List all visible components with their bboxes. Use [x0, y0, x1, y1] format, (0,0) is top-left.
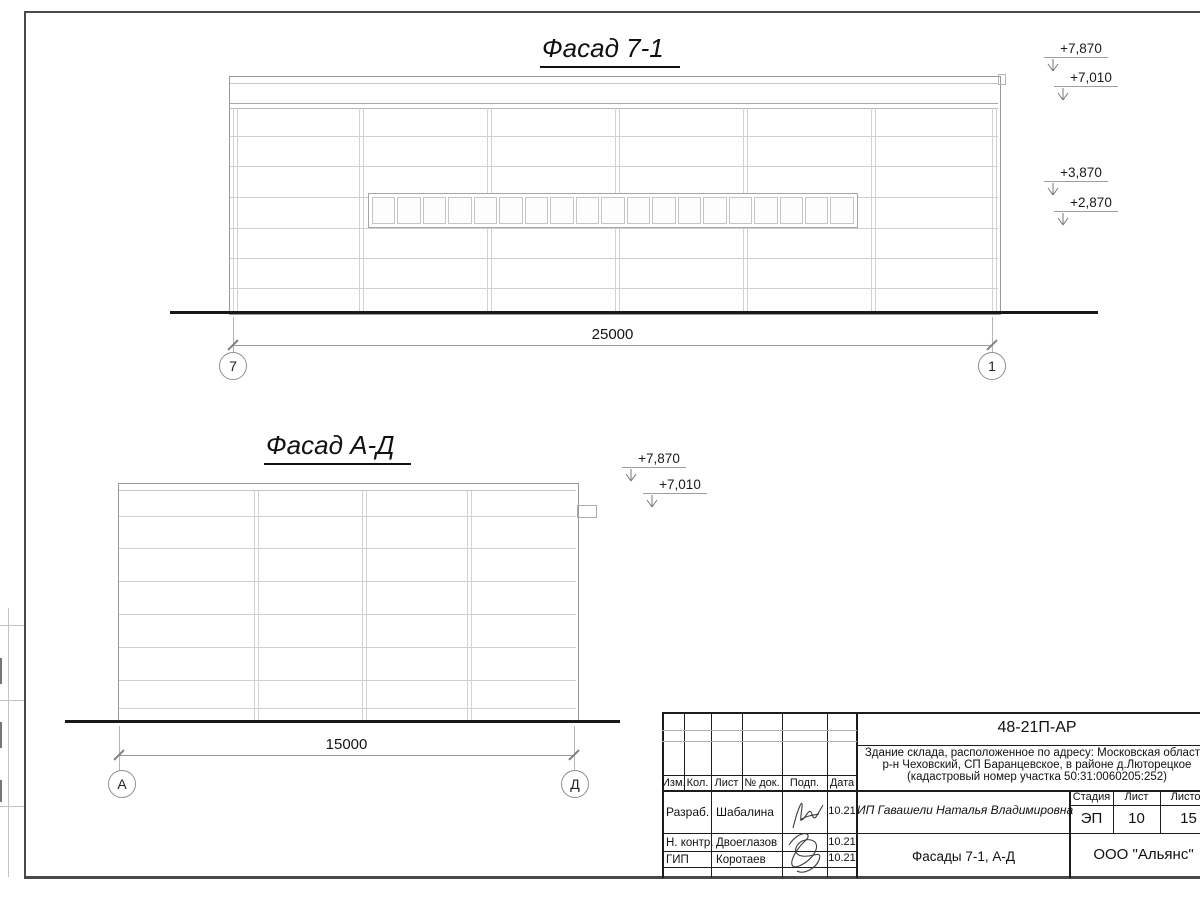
role-label: Н. контр. — [666, 837, 713, 849]
margin-column-divider — [0, 806, 24, 807]
role-label: ГИП — [666, 854, 689, 866]
elevation-mark: +2,870 — [1054, 195, 1118, 212]
column-line — [871, 108, 876, 312]
siding-line — [230, 288, 998, 289]
frame-bottom-border — [24, 876, 1200, 879]
parapet-line — [230, 108, 998, 109]
window-pane — [703, 197, 726, 224]
title-block-line — [662, 730, 857, 731]
axis-marker-d: Д — [561, 770, 589, 798]
elevation-mark: +7,010 — [643, 477, 707, 494]
elevation-mark: +7,870 — [1044, 41, 1108, 58]
title-block-line — [662, 775, 857, 776]
facade2-building-outline — [118, 483, 579, 723]
facade1-ground-line — [170, 311, 1098, 314]
window-pane — [372, 197, 395, 224]
elevation-value: +7,010 — [643, 477, 707, 492]
title-block-line — [1070, 805, 1200, 806]
siding-line — [119, 647, 576, 648]
facade2-ground-line — [65, 720, 620, 723]
elevation-arrow-icon — [1055, 87, 1071, 103]
facade1-title: Фасад 7-1 — [540, 33, 680, 68]
col-header-doc: № док. — [742, 777, 782, 789]
sheets-label: Листов — [1160, 791, 1200, 803]
stage-value: ЭП — [1070, 810, 1113, 827]
window-strip — [368, 193, 858, 228]
window-pane — [627, 197, 650, 224]
elevation-arrow-icon — [623, 468, 639, 484]
drawing-sheet: { "drawing": { "facade1": { "title": "Фа… — [0, 0, 1200, 900]
window-pane — [805, 197, 828, 224]
window-pane — [448, 197, 471, 224]
siding-line — [230, 166, 998, 167]
facade2-dimension-line — [119, 755, 574, 756]
gutter-outlet — [577, 505, 597, 518]
column-line — [254, 491, 259, 720]
parapet-line — [230, 103, 998, 104]
sheets-value: 15 — [1160, 810, 1200, 827]
col-header-podp: Подп. — [782, 777, 827, 789]
client-name: ИП Гавашели Наталья Владимировна — [857, 803, 1070, 817]
title-block-line — [662, 833, 1200, 834]
margin-text-fragment — [0, 722, 2, 748]
stage-label: Стадия — [1070, 791, 1113, 803]
extension-line — [574, 726, 575, 771]
facade1-dimension-line — [233, 345, 992, 346]
margin-text-fragment — [0, 780, 2, 802]
window-pane — [550, 197, 573, 224]
column-line — [362, 491, 367, 720]
siding-line — [230, 258, 998, 259]
column-line — [992, 108, 997, 312]
parapet-end-cap — [998, 74, 1006, 85]
role-name: Шабалина — [716, 805, 774, 819]
doc-code: 48-21П-АР — [857, 719, 1200, 737]
frame-top-border — [25, 11, 1200, 13]
elevation-mark: +7,870 — [622, 451, 686, 468]
window-pane — [601, 197, 624, 224]
window-pane — [525, 197, 548, 224]
frame-left-border — [24, 11, 26, 877]
siding-line — [119, 581, 576, 582]
siding-line — [119, 708, 576, 709]
siding-line — [119, 516, 576, 517]
sheet-label: Лист — [1113, 791, 1160, 803]
parapet-line — [119, 490, 576, 491]
window-pane — [780, 197, 803, 224]
window-pane — [576, 197, 599, 224]
window-pane — [499, 197, 522, 224]
column-line — [233, 108, 238, 312]
project-description-line1: Здание склада, расположенное по адресу: … — [857, 747, 1200, 759]
column-line — [359, 108, 364, 312]
role-name: Двоеглазов — [716, 837, 777, 849]
siding-line — [230, 136, 998, 137]
elevation-mark: +7,010 — [1054, 70, 1118, 87]
window-pane — [423, 197, 446, 224]
title-block-line — [711, 712, 712, 878]
elevation-arrow-icon — [1055, 212, 1071, 228]
col-header-izm: Изм. — [662, 777, 684, 789]
elevation-value: +7,010 — [1054, 70, 1118, 85]
column-line — [467, 491, 472, 720]
parapet-line — [230, 83, 998, 84]
window-pane — [678, 197, 701, 224]
sheet-title: Фасады 7-1, А-Д — [857, 849, 1070, 864]
extension-line — [992, 317, 993, 353]
siding-line — [119, 548, 576, 549]
elevation-arrow-icon — [644, 494, 660, 510]
facade2-title: Фасад А-Д — [264, 430, 411, 465]
window-pane — [754, 197, 777, 224]
project-description-line3: (кадастровый номер участка 50:31:0060205… — [857, 771, 1200, 783]
margin-column-divider — [0, 625, 24, 626]
title-block-line — [662, 741, 857, 742]
elevation-value: +7,870 — [622, 451, 686, 466]
window-pane — [729, 197, 752, 224]
elevation-value: +2,870 — [1054, 195, 1118, 210]
col-header-data: Дата — [827, 777, 857, 789]
axis-marker-7: 7 — [219, 352, 247, 380]
col-header-list: Лист — [711, 777, 742, 789]
title-block-border — [662, 712, 664, 878]
project-description-line2: р-н Чеховский, СП Баранцевское, в районе… — [857, 759, 1200, 771]
siding-line — [119, 614, 576, 615]
axis-marker-a: А — [108, 770, 136, 798]
sheet-value: 10 — [1113, 810, 1160, 827]
role-date: 10.21 — [827, 805, 857, 817]
margin-column-divider — [0, 700, 24, 701]
role-name: Коротаев — [716, 854, 766, 866]
company-name: ООО "Альянс" — [1070, 846, 1200, 863]
margin-text-fragment — [0, 658, 2, 684]
window-pane — [474, 197, 497, 224]
elevation-value: +7,870 — [1044, 41, 1108, 56]
window-pane — [652, 197, 675, 224]
window-pane — [397, 197, 420, 224]
elevation-value: +3,870 — [1044, 165, 1108, 180]
siding-line — [119, 680, 576, 681]
col-header-kol: Кол. — [684, 777, 711, 789]
title-block-line — [857, 745, 1200, 746]
facade1-dimension-label: 25000 — [233, 326, 992, 343]
elevation-mark: +3,870 — [1044, 165, 1108, 182]
title-block-border — [662, 712, 1200, 714]
window-pane — [830, 197, 853, 224]
siding-line — [230, 228, 998, 229]
axis-marker-1: 1 — [978, 352, 1006, 380]
margin-column-line — [8, 608, 9, 877]
signature-dvoeglazov-korotaev — [779, 827, 833, 879]
facade2-dimension-label: 15000 — [119, 736, 574, 753]
role-label: Разраб. — [666, 805, 709, 819]
